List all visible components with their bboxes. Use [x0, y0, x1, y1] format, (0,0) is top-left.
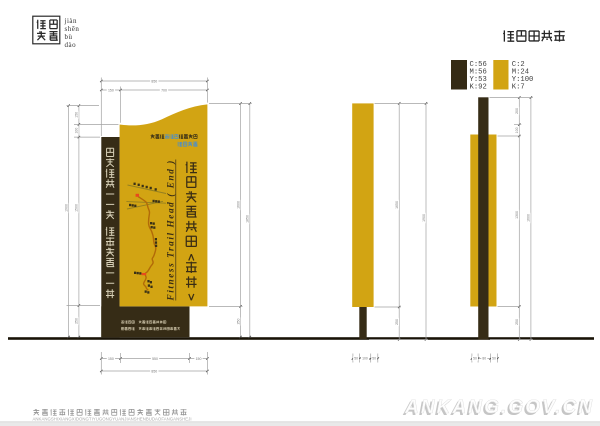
svg-text:ANKANG.GOV.CN: ANKANG.GOV.CN [404, 397, 594, 418]
svg-text:1650: 1650 [395, 201, 399, 209]
svg-text:100: 100 [75, 128, 79, 134]
svg-text:200: 200 [515, 108, 519, 114]
svg-text:150: 150 [196, 357, 202, 361]
svg-text:250: 250 [236, 319, 240, 325]
svg-text:250: 250 [515, 319, 519, 325]
svg-text:Fitness Trail Head ( End ): Fitness Trail Head ( End ) [166, 159, 177, 301]
svg-text:1850: 1850 [246, 215, 250, 223]
svg-text:550: 550 [152, 357, 158, 361]
svg-text:ANKANGSHIXIANGXIDONGTIYUGONGYU: ANKANGSHIXIANGXIDONGTIYUGONGYUANJIANSHEN… [33, 417, 192, 422]
svg-text:50: 50 [354, 357, 358, 361]
svg-text:K:92: K:92 [470, 83, 487, 91]
svg-text:50: 50 [473, 357, 477, 361]
svg-text:shēn: shēn [65, 25, 80, 33]
svg-text:150: 150 [108, 357, 114, 361]
svg-text:jiàn: jiàn [64, 17, 78, 25]
svg-text:850: 850 [151, 369, 157, 373]
svg-text:dào: dào [65, 41, 77, 49]
svg-text:100: 100 [515, 127, 519, 133]
svg-text:80: 80 [482, 357, 486, 361]
svg-text:1600: 1600 [527, 214, 531, 222]
svg-text:50: 50 [372, 357, 376, 361]
svg-text:250: 250 [395, 319, 399, 325]
svg-text:250: 250 [75, 318, 79, 324]
svg-text:700: 700 [161, 88, 167, 92]
svg-text:150: 150 [108, 88, 114, 92]
svg-text:K:7: K:7 [512, 83, 525, 91]
svg-text:50: 50 [492, 357, 496, 361]
svg-text:1900: 1900 [422, 214, 426, 222]
svg-text:100: 100 [362, 357, 368, 361]
svg-text:bù: bù [65, 33, 73, 41]
svg-text:850: 850 [151, 79, 157, 83]
svg-text:1900: 1900 [64, 204, 68, 212]
svg-text:1500: 1500 [75, 204, 79, 212]
svg-text:1600: 1600 [236, 201, 240, 209]
svg-text:150: 150 [75, 112, 79, 118]
svg-text:1300: 1300 [515, 211, 519, 219]
